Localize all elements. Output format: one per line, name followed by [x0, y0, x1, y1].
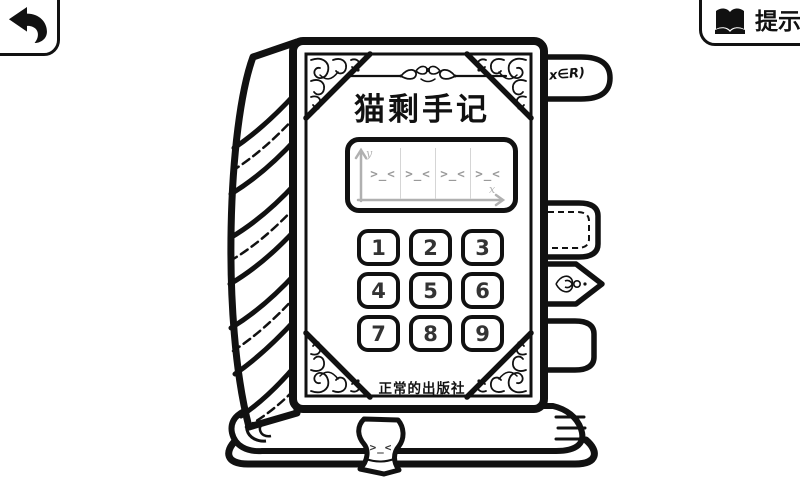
key-9[interactable]: 9: [461, 315, 504, 352]
key-6[interactable]: 6: [461, 272, 504, 309]
key-7[interactable]: 7: [357, 315, 400, 352]
display-slot: >_<: [366, 148, 401, 199]
publisher-text: 正常的出版社: [300, 377, 544, 397]
display-slot: >_<: [401, 148, 436, 199]
display-slots: >_< >_< >_< >_<: [366, 148, 505, 199]
display-slot: >_<: [436, 148, 471, 199]
back-arrow-icon: [6, 6, 48, 44]
game-screen: 提示 猫剩手记 y x >_< >_< >_< >_< 1 2 3 4 5 6: [0, 0, 800, 480]
ribbon-face: >_<: [362, 441, 400, 454]
display-slot: >_<: [471, 148, 505, 199]
key-4[interactable]: 4: [357, 272, 400, 309]
hint-label: 提示: [755, 10, 800, 35]
hint-book-icon: [713, 7, 747, 35]
keypad: 1 2 3 4 5 6 7 8 9: [357, 229, 504, 352]
key-8[interactable]: 8: [409, 315, 452, 352]
book-title: 猫剩手记: [300, 84, 544, 129]
hint-button[interactable]: 提示: [699, 0, 800, 46]
book-spine: [230, 42, 297, 427]
key-1[interactable]: 1: [357, 229, 400, 266]
back-button[interactable]: [0, 0, 60, 56]
key-5[interactable]: 5: [409, 272, 452, 309]
display-panel: y x >_< >_< >_< >_<: [345, 137, 518, 213]
key-3[interactable]: 3: [461, 229, 504, 266]
key-2[interactable]: 2: [409, 229, 452, 266]
